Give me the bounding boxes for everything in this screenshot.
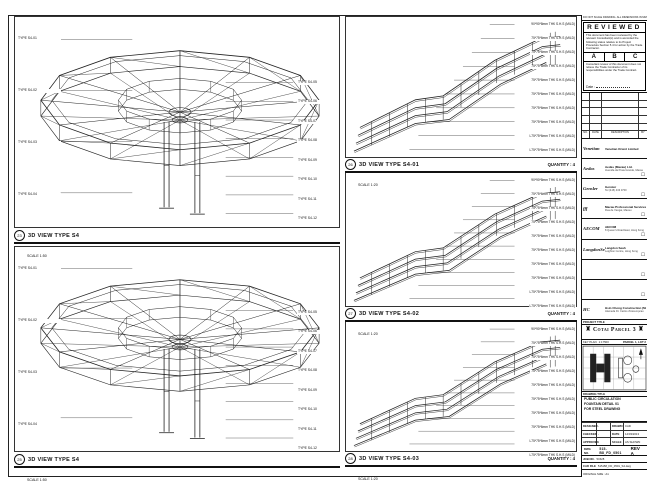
signoff-key: DRAWN xyxy=(611,423,624,430)
member-type-label: TYPE S4-06 xyxy=(297,100,339,104)
section-size-label: 75*75*6mm THK S.H.S (MILD) xyxy=(530,193,576,197)
member-type-label: TYPE S4-12 xyxy=(297,447,339,451)
checkbox-icon: ☐ xyxy=(641,173,645,178)
view-scale: SCALE 1:50 xyxy=(27,478,47,482)
view-scale: SCALE 1:50 xyxy=(27,254,47,258)
member-type-label: TYPE S4-05 xyxy=(297,81,339,85)
project-title-section: PROJECT TITLE ♜ Cotai Parcel 3 ♜ xyxy=(582,320,647,340)
member-labels-right: TYPE S4-05TYPE S4-06TYPE S4-07TYPE S4-08… xyxy=(297,311,339,451)
member-type-label: TYPE S4-04 xyxy=(17,423,61,427)
revision-row xyxy=(582,123,647,131)
member-type-label: TYPE S4-09 xyxy=(297,159,339,163)
view-title: 3D VIEW TYPE S4-01 xyxy=(359,162,419,168)
consultant-row: Aedas Aedas (Macau) Ltd. Avenida da Prai… xyxy=(582,159,647,179)
signoff-key: APPROVED xyxy=(582,438,597,445)
section-annotations: 90*90*8mm THK S.H.S (MILD)75*75*6mm THK … xyxy=(518,179,576,309)
reviewed-stamp: REVIEWED This document has been reviewed… xyxy=(582,21,647,93)
date-label: Date : xyxy=(586,85,595,89)
dwg-no-label: DWG NO. xyxy=(583,447,597,455)
review-status-option: C xyxy=(625,53,645,61)
signoff-table: DESIGNED - DRAWN CAD CHECKED - DATE 14/0… xyxy=(582,422,647,446)
key-plan-label: KEY PLAN xyxy=(583,340,597,344)
member-type-label: TYPE S4-06 xyxy=(297,330,339,334)
firm-logo: fff xyxy=(583,206,605,211)
detail-bubble: 27 xyxy=(345,308,356,319)
key-plan-scale: 1:17500 xyxy=(599,340,609,344)
title-underline xyxy=(345,171,577,173)
review-status-options: ABC xyxy=(584,52,645,62)
firm-logo: HC xyxy=(583,307,605,312)
member-type-label: TYPE S4-01 xyxy=(17,267,61,271)
cad-file-value: 515-B8_FD_0501_S4.dwg xyxy=(598,464,631,468)
firm-text: Macau Professional Services Ltd. Rua de … xyxy=(605,205,646,212)
checkbox-icon: ☐ xyxy=(641,193,645,198)
member-type-label: TYPE S4-09 xyxy=(297,389,339,393)
signoff-value: - xyxy=(597,431,611,438)
col-no: NO. xyxy=(582,131,590,138)
checkbox-icon: ☐ xyxy=(641,253,645,258)
project-name: Cotai Parcel 3 xyxy=(593,327,636,333)
revision-row xyxy=(582,115,647,123)
view-title: 3D VIEW TYPE S4 xyxy=(28,233,79,239)
section-size-label: 75*75*6mm THK S.H.S (MILD) xyxy=(530,277,576,281)
consultant-row: fff Macau Professional Services Ltd. Rua… xyxy=(582,199,647,219)
col-description: DESCRIPTION xyxy=(602,131,639,138)
firm-address: Rua de Xangai, Macau xyxy=(605,209,646,212)
signoff-row: DESIGNED - DRAWN CAD xyxy=(582,422,647,430)
detail-bubble: 25 xyxy=(14,454,25,465)
signoff-key: SCALE xyxy=(611,438,624,445)
consultant-row: AECOM AECOM 8 Queen's Road East, Hong Ko… xyxy=(582,219,647,239)
section-size-label: 75*75*6mm THK S.H.S (MILD) xyxy=(530,342,576,346)
checkbox-icon: ☐ xyxy=(641,273,645,278)
consultant-row: HC Hsin Chong Construction (Macau) Co. L… xyxy=(582,300,647,319)
title-underline xyxy=(345,320,577,322)
drawing-title-lines: PUBLIC CIRCULATIONFOUNTAIN DETAIL 01FOR … xyxy=(582,397,647,412)
key-plan-section: KEY PLAN 1:17500 PARCEL 1, LOT 2 xyxy=(582,340,647,392)
wireframe-radial-canopy xyxy=(15,17,339,227)
member-type-label: TYPE S4-07 xyxy=(297,120,339,124)
title-underline xyxy=(14,242,340,244)
firm-address: Tel (415) 433 3700 xyxy=(605,189,627,192)
member-type-label: TYPE S4-11 xyxy=(297,198,339,202)
firm-address: Avenida da Praia Grande, Macau xyxy=(605,169,643,172)
firm-text: AECOM 8 Queen's Road East, Hong Kong xyxy=(605,225,644,232)
consultant-row: Gensler Gensler Tel (415) 433 3700 ☐ xyxy=(582,179,647,199)
revision-row xyxy=(582,107,647,115)
consultant-list: Venetian Venetian Orient Limited Aedas A… xyxy=(582,139,647,320)
title-block: DO NOT SCALE DRAWING. ALL DIMENSIONS IN … xyxy=(581,15,647,477)
size-note: ORIGINAL SIZE : A1 xyxy=(583,472,609,476)
quantity-note: QUANTITY : 4 xyxy=(548,311,577,316)
drawing-title-line: FOR STEEL DRAWING xyxy=(582,407,647,412)
member-type-label: TYPE S4-08 xyxy=(297,139,339,143)
member-labels-right: TYPE S4-05TYPE S4-06TYPE S4-07TYPE S4-08… xyxy=(297,81,339,221)
cad-file-row: CAD FILE 515-B8_FD_0501_S4.dwg xyxy=(582,463,647,470)
dwg-no-value: 515-B8_FD_0501 xyxy=(599,447,628,455)
member-type-label: TYPE S4-03 xyxy=(17,371,61,375)
consultant-row: ☐ xyxy=(582,260,647,280)
member-type-label: TYPE S4-01 xyxy=(17,37,61,41)
member-type-label: TYPE S4-02 xyxy=(17,319,61,323)
section-size-label: L75*75*6mm THK S.H.S (MILD) xyxy=(529,291,576,295)
signoff-row: CHECKED - DATE 14/03/2013 xyxy=(582,430,647,438)
caption-s4-02: 27 3D VIEW TYPE S4-02 QUANTITY : 4 SCALE… xyxy=(345,308,577,340)
tower-icon: ♜ xyxy=(638,326,644,333)
size-note-row: ORIGINAL SIZE : A1 xyxy=(582,470,647,477)
panel-3d-view-type-s4-bottom: TYPE S4-01TYPE S4-02TYPE S4-03TYPE S4-04… xyxy=(14,246,340,452)
member-labels-left: TYPE S4-01TYPE S4-02TYPE S4-03TYPE S4-04 xyxy=(17,267,61,427)
section-size-label: 90*90*8mm THK S.H.S (MILD) xyxy=(530,23,576,27)
drawing-sheet: TYPE S4-01TYPE S4-02TYPE S4-03TYPE S4-04… xyxy=(0,0,650,488)
panel-3d-view-s4-01: 90*90*8mm THK S.H.S (MILD)75*75*6mm THK … xyxy=(345,16,577,158)
detail-bubble: 28 xyxy=(345,453,356,464)
caption-s4-03: 28 3D VIEW TYPE S4-03 QUANTITY : 4 SCALE… xyxy=(345,453,577,485)
section-size-label: 75*75*6mm THK S.H.S (MILD) xyxy=(530,370,576,374)
section-size-label: 75*75*6mm THK S.H.S (MILD) xyxy=(530,79,576,83)
firm-text: Aedas (Macau) Ltd. Avenida da Praia Gran… xyxy=(605,165,643,172)
view-title: 3D VIEW TYPE S4-03 xyxy=(359,456,419,462)
detail-bubble: 23 xyxy=(14,230,25,241)
reviewed-body-2: Consultant review of this document does … xyxy=(584,62,645,74)
firm-logo: Gensler xyxy=(583,186,605,191)
firm-logo: LangdonSeah xyxy=(583,247,605,252)
member-labels-left: TYPE S4-01TYPE S4-02TYPE S4-03TYPE S4-04 xyxy=(17,37,61,197)
section-annotations: 90*90*8mm THK S.H.S (MILD)75*75*6mm THK … xyxy=(518,328,576,458)
member-type-label: TYPE S4-11 xyxy=(297,428,339,432)
signoff-value: AS SHOWN xyxy=(624,438,647,445)
consultant-row: LangdonSeah Langdon Seah Leighton Centre… xyxy=(582,240,647,260)
revision-row xyxy=(582,93,647,100)
job-no-label: JOB NO. xyxy=(583,457,595,461)
checkbox-icon: ☐ xyxy=(641,213,645,218)
caption-left-top: 23 3D VIEW TYPE S4 SCALE 1:50 xyxy=(14,230,340,262)
review-date-line: Date : xyxy=(584,82,645,90)
view-title: 3D VIEW TYPE S4-02 xyxy=(359,311,419,317)
section-size-label: 75*75*6mm THK S.H.S (MILD) xyxy=(530,356,576,360)
section-size-label: 75*75*6mm THK S.H.S (MILD) xyxy=(530,412,576,416)
member-type-label: TYPE S4-12 xyxy=(297,217,339,221)
signoff-key: DESIGNED xyxy=(582,423,597,430)
section-size-label: 75*75*6mm THK S.H.S (MILD) xyxy=(530,37,576,41)
section-size-label: 75*75*6mm THK S.H.S (MILD) xyxy=(530,221,576,225)
section-size-label: 75*75*6mm THK S.H.S (MILD) xyxy=(530,384,576,388)
section-size-label: 75*75*6mm THK S.H.S (MILD) xyxy=(530,93,576,97)
tower-icon: ♜ xyxy=(585,326,591,333)
job-number-row: JOB NO. 51528 xyxy=(582,456,647,463)
consultant-row: ☐ xyxy=(582,280,647,300)
firm-text: Hsin Chong Construction (Macau) Co. Ltd.… xyxy=(605,306,646,313)
review-status-option: B xyxy=(605,53,626,61)
caption-left-bottom: 25 3D VIEW TYPE S4 SCALE 1:50 xyxy=(14,454,340,486)
title-underline xyxy=(345,465,577,467)
view-scale: SCALE 1:20 xyxy=(358,183,378,187)
section-size-label: 75*75*6mm THK S.H.S (MILD) xyxy=(530,65,576,69)
section-size-label: 75*75*6mm THK S.H.S (MILD) xyxy=(530,121,576,125)
section-size-label: 75*75*6mm THK S.H.S (MILD) xyxy=(530,249,576,253)
firm-name: Venetian Orient Limited xyxy=(605,147,639,151)
section-annotations: 90*90*8mm THK S.H.S (MILD)75*75*6mm THK … xyxy=(518,23,576,153)
member-type-label: TYPE S4-07 xyxy=(297,350,339,354)
signoff-key: CHECKED xyxy=(582,431,597,438)
view-scale: SCALE 1:20 xyxy=(358,477,378,481)
title-underline xyxy=(14,466,340,468)
drawing-number-row: DWG NO. 515-B8_FD_0501 REV A xyxy=(582,446,647,456)
quantity-note: QUANTITY : 4 xyxy=(548,456,577,461)
firm-text: Venetian Orient Limited xyxy=(605,147,639,151)
date-blank xyxy=(596,83,630,88)
member-type-label: TYPE S4-08 xyxy=(297,369,339,373)
section-size-label: 75*75*6mm THK S.H.S (MILD) xyxy=(530,235,576,239)
firm-address: 8 Queen's Road East, Hong Kong xyxy=(605,229,644,232)
section-size-label: 75*75*6mm THK S.H.S (MILD) xyxy=(530,107,576,111)
signoff-key: DATE xyxy=(611,431,624,438)
key-plan-map xyxy=(582,345,647,391)
signoff-value: - xyxy=(597,423,611,430)
panel-3d-view-s4-02: 90*90*8mm THK S.H.S (MILD)75*75*6mm THK … xyxy=(345,172,577,307)
section-size-label: L75*75*6mm THK S.H.S (MILD) xyxy=(529,135,576,139)
section-size-label: L75*75*6mm THK S.H.S (MILD) xyxy=(529,440,576,444)
parcel-label: PARCEL 1, LOT 2 xyxy=(623,340,646,344)
quantity-note: QUANTITY : 4 xyxy=(548,162,577,167)
member-type-label: TYPE S4-02 xyxy=(17,89,61,93)
view-title: 3D VIEW TYPE S4 xyxy=(28,457,79,463)
reviewed-title: REVIEWED xyxy=(584,23,645,33)
reviewed-body-1: This document has been reviewed by the r… xyxy=(584,33,645,52)
firm-text: Langdon Seah Leighton Centre, Hong Kong xyxy=(605,246,638,253)
section-size-label: 75*75*6mm THK S.H.S (MILD) xyxy=(530,426,576,430)
signoff-value: CAD xyxy=(624,423,647,430)
firm-address: Leighton Centre, Hong Kong xyxy=(605,250,638,253)
member-type-label: TYPE S4-10 xyxy=(297,408,339,412)
section-size-label: 75*75*6mm THK S.H.S (MILD) xyxy=(530,51,576,55)
signoff-row: APPROVED - SCALE AS SHOWN xyxy=(582,437,647,445)
firm-logo: AECOM xyxy=(583,226,605,231)
panel-3d-view-type-s4-top: TYPE S4-01TYPE S4-02TYPE S4-03TYPE S4-04… xyxy=(14,16,340,228)
detail-bubble: 26 xyxy=(345,159,356,170)
rev-value: REV A xyxy=(631,446,646,456)
caption-s4-01: 26 3D VIEW TYPE S4-01 QUANTITY : 4 SCALE… xyxy=(345,159,577,191)
firm-address: Alameda Dr. Carlos d'Assumpcao xyxy=(605,310,646,313)
job-no-value: 51528 xyxy=(597,457,605,461)
wireframe-radial-canopy xyxy=(15,247,339,451)
checkbox-icon: ☐ xyxy=(641,233,645,238)
signoff-value: 14/03/2013 xyxy=(624,431,647,438)
col-date: DATE xyxy=(590,131,602,138)
section-size-label: 75*75*6mm THK S.H.S (MILD) xyxy=(530,263,576,267)
section-size-label: L75*75*6mm THK S.H.S (MILD) xyxy=(529,149,576,153)
firm-logo: Aedas xyxy=(583,166,605,171)
member-type-label: TYPE S4-03 xyxy=(17,141,61,145)
firm-text: Gensler Tel (415) 433 3700 xyxy=(605,185,627,192)
member-type-label: TYPE S4-05 xyxy=(297,311,339,315)
revision-row xyxy=(582,100,647,108)
col-by: BY xyxy=(639,131,647,138)
signoff-value: - xyxy=(597,438,611,445)
section-size-label: 75*75*6mm THK S.H.S (MILD) xyxy=(530,398,576,402)
panel-3d-view-s4-03: 90*90*8mm THK S.H.S (MILD)75*75*6mm THK … xyxy=(345,321,577,452)
firm-logo: Venetian xyxy=(583,146,605,151)
consultant-row: Venetian Venetian Orient Limited xyxy=(582,139,647,159)
member-type-label: TYPE S4-10 xyxy=(297,178,339,182)
revision-table: NO. DATE DESCRIPTION BY xyxy=(582,93,647,139)
section-size-label: 75*75*6mm THK S.H.S (MILD) xyxy=(530,207,576,211)
revision-header-row: NO. DATE DESCRIPTION BY xyxy=(582,130,647,138)
drawing-title-section: DRAWING TITLE PUBLIC CIRCULATIONFOUNTAIN… xyxy=(582,392,647,422)
view-scale: SCALE 1:20 xyxy=(358,332,378,336)
member-type-label: TYPE S4-04 xyxy=(17,193,61,197)
cad-file-label: CAD FILE xyxy=(583,464,596,468)
review-status-option: A xyxy=(584,53,605,61)
checkbox-icon: ☐ xyxy=(641,293,645,298)
